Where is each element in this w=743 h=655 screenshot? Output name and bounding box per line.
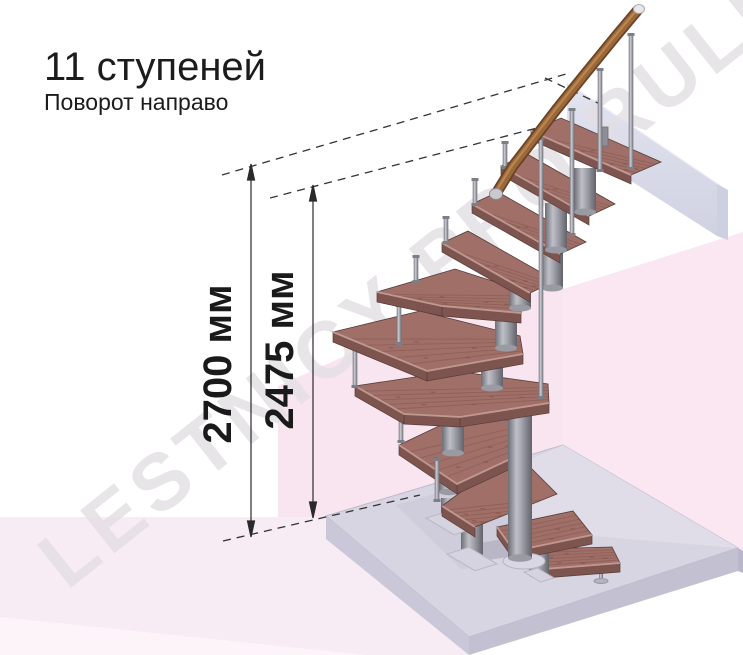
svg-text:2700 мм: 2700 мм [196, 284, 240, 443]
svg-text:11 ступеней: 11 ступеней [44, 45, 266, 89]
svg-text:Поворот направо: Поворот направо [44, 89, 228, 115]
svg-text:2475 мм: 2475 мм [258, 270, 302, 429]
